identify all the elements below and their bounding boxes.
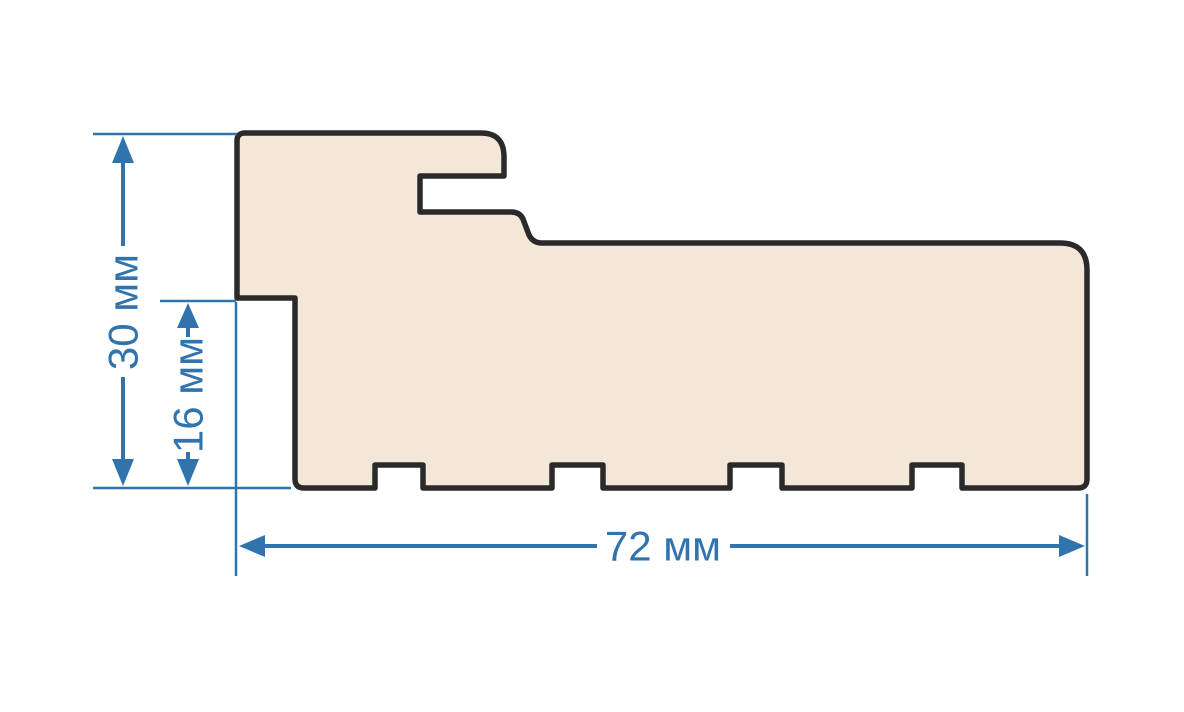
arrow-down-icon [177,459,199,486]
arrow-up-icon [177,303,199,328]
arrow-left-icon [239,535,265,557]
dimension-label-width: 72 мм [605,523,721,570]
drawing-canvas: 30 мм 16 мм 72 мм [0,0,1184,712]
dimension-label-inner-height: 16 мм [165,337,212,453]
profile-diagram: 30 мм 16 мм 72 мм [0,0,1184,712]
profile-outline [237,133,1087,488]
dimension-label-height: 30 мм [100,254,147,370]
arrow-up-icon [112,136,134,163]
dimension-inner-height-16mm: 16 мм [160,301,236,486]
arrow-down-icon [112,459,134,486]
arrow-right-icon [1059,535,1085,557]
